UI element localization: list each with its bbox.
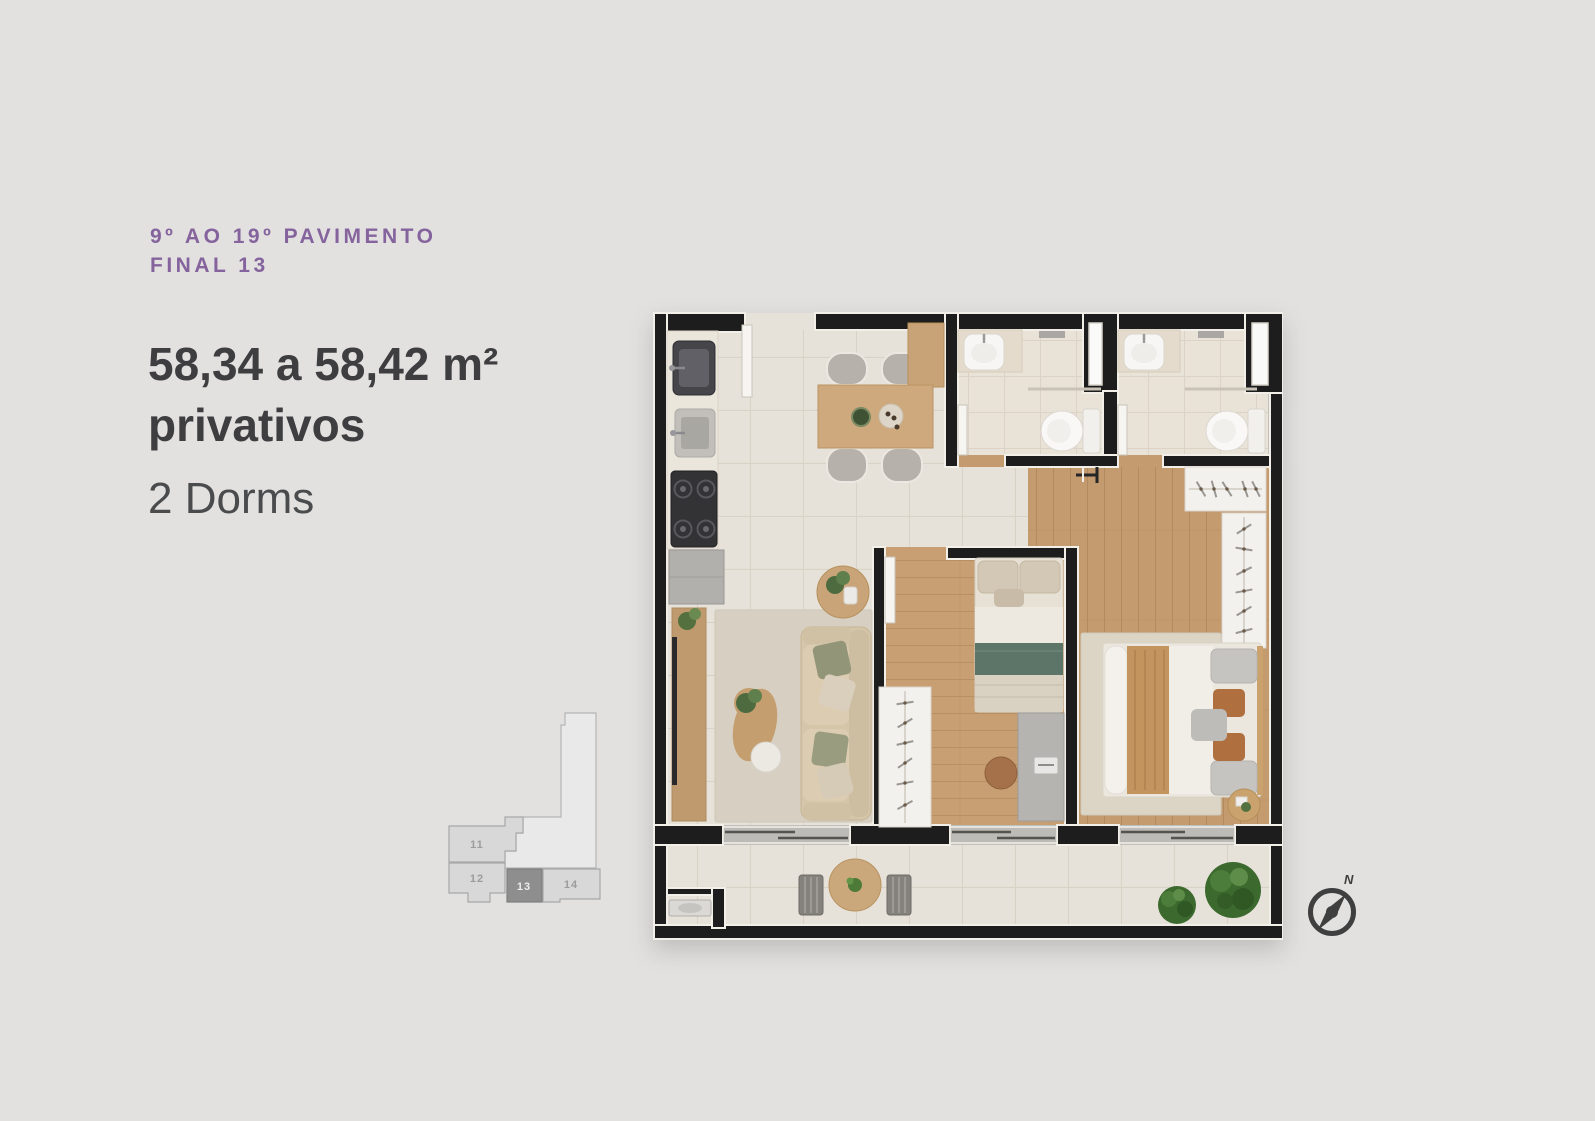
area-suffix: privativos	[148, 395, 498, 456]
page: 9º AO 19º PAVIMENTO FINAL 13 58,34 a 58,…	[0, 0, 1595, 1121]
dining-table	[818, 385, 933, 448]
key-plan-unit-11-label: 11	[470, 839, 484, 851]
bedroom1-closet	[879, 687, 931, 827]
area-title: 58,34 a 58,42 m² privativos	[148, 334, 498, 456]
key-plan-unit-14-label: 14	[564, 879, 578, 891]
sofa-pillow-green	[812, 640, 852, 680]
dining-chair	[827, 448, 867, 482]
wall-top-right	[815, 313, 1283, 330]
balcony-bench	[799, 875, 823, 915]
bed1-pillow	[1020, 561, 1060, 593]
wall-balcony-band-4	[1235, 825, 1283, 845]
balcony-plant-large	[1205, 862, 1261, 918]
bathroom-2-threshold	[1118, 455, 1163, 467]
kitchen	[667, 331, 724, 604]
bed1-green-blanket	[975, 643, 1063, 675]
plant-bowl	[852, 408, 870, 426]
tv-screen	[672, 637, 677, 785]
wall-balcony-band-2	[850, 825, 950, 845]
wall-bedroom1-top	[947, 547, 1073, 559]
master-blanket	[1127, 646, 1169, 794]
wall-bottom	[654, 925, 1283, 939]
wall-balcony-band-3	[1057, 825, 1119, 845]
dining-side-panel	[908, 323, 944, 387]
key-plan-building-outline	[505, 713, 596, 868]
key-plan-unit-12-label: 12	[470, 873, 484, 885]
bathroom-1-threshold	[958, 455, 1005, 467]
bath1-toilet	[1041, 409, 1100, 453]
master-headboard	[1257, 646, 1263, 795]
floor-range-line: 9º AO 19º PAVIMENTO	[150, 222, 436, 251]
key-plan-unit-13-label: 13	[517, 881, 531, 893]
balcony-plant-small	[1158, 886, 1196, 924]
compass-north-label: N	[1344, 872, 1354, 887]
bathroom-2-door-leaf	[1118, 405, 1127, 455]
desk-chair	[985, 757, 1017, 789]
compass-svg: N	[1300, 866, 1370, 946]
master-nightstand	[1228, 789, 1260, 821]
bedroom-1-door-leaf	[885, 557, 895, 623]
dorms-label: 2 Dorms	[148, 474, 314, 524]
hall-tile-floor	[958, 467, 1028, 547]
key-plan-svg: 11 12 13 14	[440, 695, 605, 910]
ac-unit	[669, 900, 711, 916]
sofa	[801, 627, 871, 820]
key-plan: 11 12 13 14	[440, 695, 605, 910]
master-bed	[1103, 643, 1263, 797]
bed1-small-pillow	[994, 589, 1024, 607]
balcony-table	[829, 859, 881, 911]
wall-bath1-bottom	[1005, 455, 1118, 467]
master-pillow-gray	[1211, 649, 1257, 683]
entry-door-leaf	[742, 325, 752, 397]
compass-icon: N	[1300, 866, 1370, 946]
dining-chair	[827, 353, 867, 385]
dining-chair	[882, 448, 922, 482]
wall-dining-bath1	[945, 313, 958, 467]
floor-range-label: 9º AO 19º PAVIMENTO FINAL 13	[150, 222, 436, 280]
entry-threshold	[745, 313, 815, 330]
kitchen-sink-1	[669, 341, 715, 395]
floor-plan-svg	[645, 305, 1283, 953]
floor-plan-image	[645, 305, 1283, 953]
wall-balcony-band-1	[654, 825, 723, 845]
bathroom-1-door-leaf	[958, 405, 967, 455]
bathroom-2-window	[1252, 323, 1268, 385]
kitchen-sink-2	[670, 409, 715, 457]
master-pillow-center	[1191, 709, 1227, 741]
stove	[671, 471, 717, 547]
living-slider	[723, 827, 850, 843]
balcony-sliding-doors	[723, 827, 1235, 843]
serving-plate	[879, 404, 903, 428]
wall-bath2-bottom	[1163, 455, 1270, 467]
fridge-cabinet	[669, 550, 724, 604]
master-slider	[1119, 827, 1235, 843]
area-value: 58,34 a 58,42 m²	[148, 334, 498, 395]
tv-bench	[672, 608, 706, 821]
master-wardrobe	[1185, 467, 1266, 511]
bedroom1-slider	[950, 827, 1057, 843]
bedroom1-bed	[975, 558, 1063, 712]
bath2-shower-head	[1198, 331, 1224, 338]
wall-balcony-niche-side	[712, 888, 725, 928]
balcony-bench	[887, 875, 911, 915]
unit-final-line: FINAL 13	[150, 251, 436, 280]
bath1-shower-head	[1039, 331, 1065, 338]
wall-bedroom1-master	[1065, 547, 1078, 825]
side-table	[817, 566, 869, 618]
bathroom-1-window	[1089, 323, 1102, 385]
master-closet	[1222, 513, 1266, 648]
bed1-pillow	[978, 561, 1018, 593]
bath2-toilet	[1206, 409, 1265, 453]
compass-center-dot	[1326, 906, 1338, 918]
